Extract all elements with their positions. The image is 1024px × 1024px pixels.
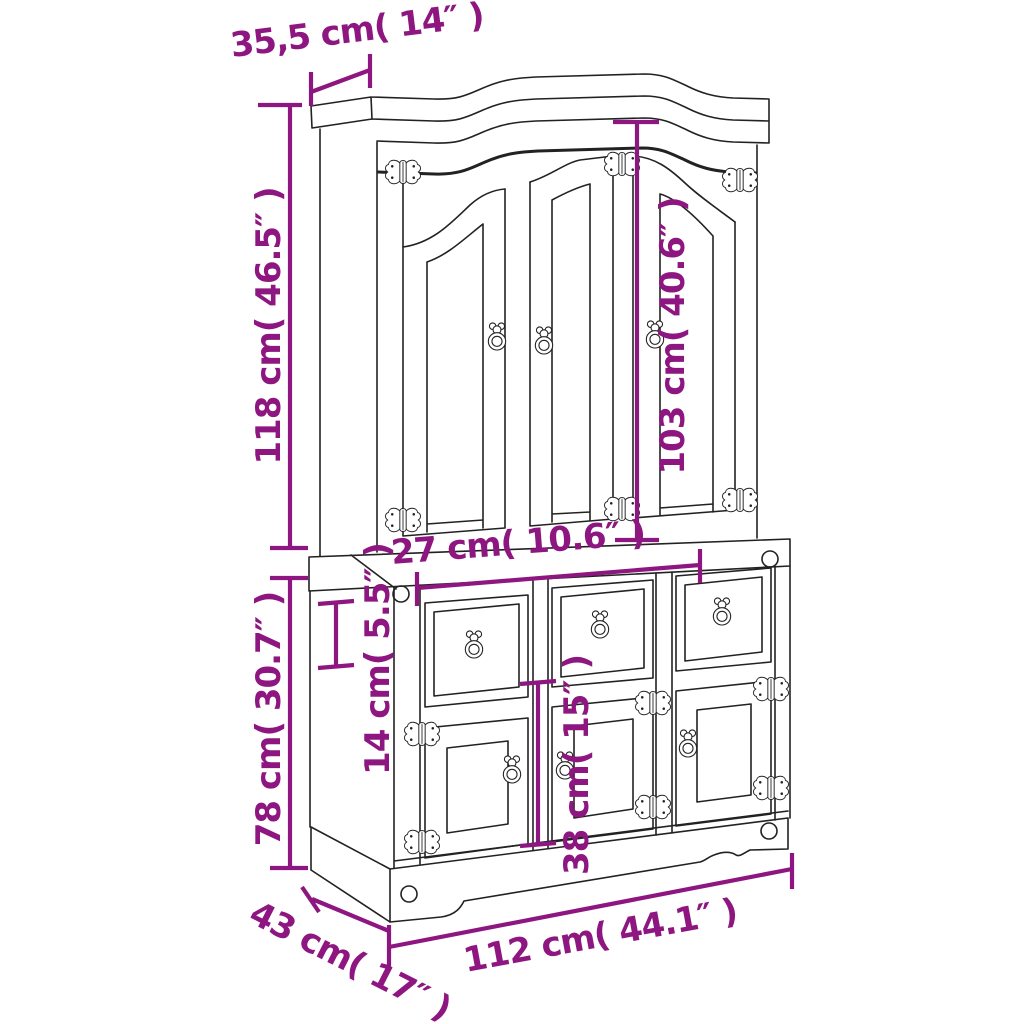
cabinet-drawing (309, 74, 790, 922)
hinge-icon (404, 722, 439, 745)
ring-pull-icon (488, 323, 505, 350)
dimension-top-depth: 35,5 cm( 14″ ) (228, 0, 486, 106)
hinge-icon (385, 160, 420, 183)
ring-pull-icon (713, 598, 730, 625)
hinge-icon (635, 691, 670, 714)
hinge-icon (753, 776, 788, 799)
crown-reveal (378, 148, 756, 174)
crown-molding (311, 74, 769, 143)
dimension-label-top-depth: 35,5 cm( 14″ ) (228, 0, 486, 66)
ring-pull-icon (503, 756, 520, 783)
counter-peg (762, 551, 778, 567)
hinge-icon (722, 168, 757, 191)
plinth-peg (401, 886, 417, 902)
ring-pull-icon (591, 611, 608, 638)
dimension-upper-height: 118 cm( 46.5″ ) (249, 105, 308, 548)
dimension-lower-height: 78 cm( 30.7″ ) (249, 578, 308, 868)
ring-pull-icon (679, 730, 696, 757)
dimension-label-upper-door-height: 103 cm( 40.6″ ) (653, 197, 693, 474)
hinge-icon (404, 830, 439, 853)
plinth-peg (761, 823, 777, 839)
hinge-icon (753, 677, 788, 700)
hutch-door-left (403, 189, 505, 532)
dimension-line (318, 601, 354, 668)
dimension-upper-door-height: 103 cm( 40.6″ ) (613, 122, 693, 540)
dimension-label-lower-height: 78 cm( 30.7″ ) (249, 592, 289, 847)
door-lower-left (425, 718, 528, 858)
hinge-icon (604, 152, 639, 175)
dimension-drawer-height: 14 cm( 5.5″ ) (318, 543, 398, 775)
dimension-label-drawer-width: 27 cm( 10.6″ ) (390, 513, 647, 573)
dimension-label-upper-height: 118 cm( 46.5″ ) (249, 187, 289, 464)
dimension-label-drawer-height: 14 cm( 5.5″ ) (358, 543, 398, 775)
dimension-label-lower-door-height: 38 cm( 15″ ) (557, 655, 597, 875)
hinge-icon (722, 488, 757, 511)
hinge-icon (635, 795, 670, 818)
dimension-depth: 43 cm( 17″ ) (243, 887, 457, 1024)
furniture-dimension-diagram: 35,5 cm( 14″ ) 118 cm( 46.5″ ) 103 cm( 4… (0, 0, 1024, 1024)
hinge-icon (385, 508, 420, 531)
ring-pull-icon (465, 631, 482, 658)
dimension-line (520, 681, 556, 846)
ring-pull-icon (535, 327, 552, 354)
dimension-lower-door-height: 38 cm( 15″ ) (520, 655, 597, 875)
